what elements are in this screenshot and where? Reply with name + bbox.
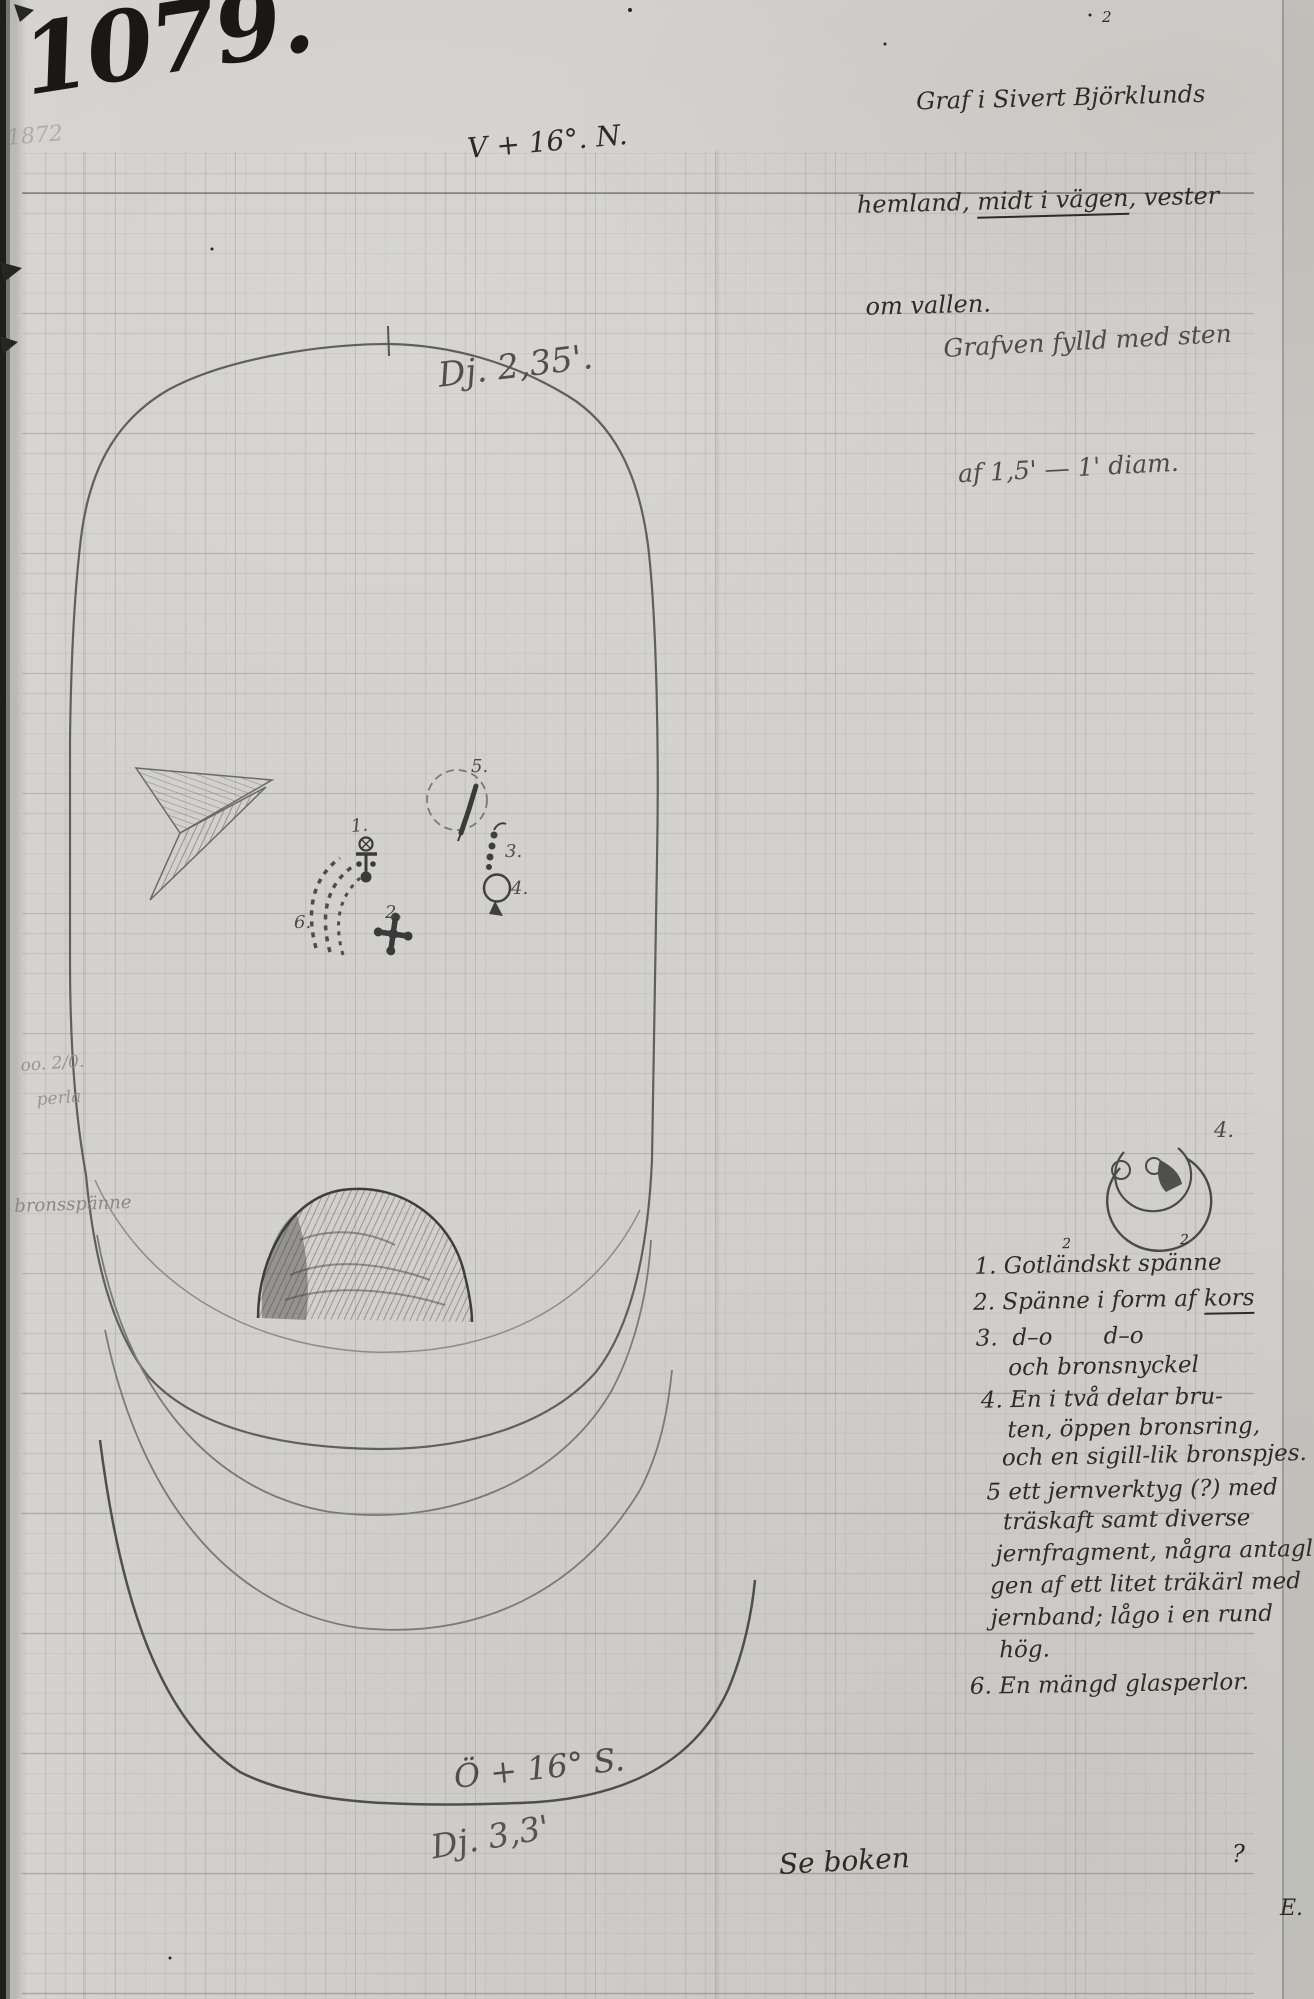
find-list-superscript-a: 2 bbox=[1062, 1236, 1071, 1252]
grave-outline-drawing bbox=[70, 326, 755, 1804]
find-list: 2 2 1. Gotländskt spänne 2. Spänne i for… bbox=[962, 1230, 1310, 1716]
find-list-item-5-cont-3: gen af ett litet träkärl med bbox=[990, 1568, 1301, 1599]
site-note-line-2-post: , vester bbox=[1128, 181, 1219, 211]
find-list-item-4-cont-1: ten, öppen bronsring, bbox=[1007, 1413, 1260, 1443]
find-list-item-2: 2. Spänne i form af kors bbox=[973, 1285, 1255, 1316]
find-5-circle-pin-drawing bbox=[427, 770, 487, 841]
find-list-item-5-cont-4: jernband; lågo i en rund bbox=[990, 1601, 1273, 1632]
find-list-item-5: 5 ett jernverktyg (?) med bbox=[986, 1475, 1278, 1506]
plan-marker-5: 5. bbox=[471, 756, 488, 777]
recorder-initial: E. bbox=[1280, 1896, 1303, 1921]
find-6-bead-arc-drawing bbox=[311, 858, 360, 955]
ghost-year-note: 1872 bbox=[6, 121, 64, 151]
find-list-item-4: 4. En i två delar bru- bbox=[981, 1383, 1224, 1413]
find-list-item-5-cont-5: hög. bbox=[999, 1637, 1050, 1664]
find-list-item-3-cont: och bronsnyckel bbox=[1008, 1352, 1199, 1381]
plan-marker-1: 1. bbox=[350, 815, 369, 837]
site-note-line-2-pre: hemland, bbox=[857, 188, 978, 219]
find-list-item-2-underlined: kors bbox=[1204, 1285, 1255, 1315]
margin-note-line-2: perla bbox=[36, 1087, 82, 1110]
find-3-4-chain-ring-drawing bbox=[484, 823, 510, 916]
ring-detail-marker: 4. bbox=[1214, 1118, 1234, 1142]
hatched-wedge-drawing bbox=[136, 768, 272, 900]
grave-fill-note-line-1: Grafven fylld med sten bbox=[942, 313, 1232, 370]
grave-fill-note-line-2: af 1,5' — 1' diam. bbox=[957, 439, 1239, 496]
scanned-field-sketch-page: 1079. 1872 2 Graf i Sivert Björklunds he… bbox=[0, 0, 1314, 1999]
find-1-brooch-drawing bbox=[356, 838, 377, 883]
margin-note-line-3: bronsspänne bbox=[14, 1192, 132, 1217]
find-list-item-1: 1. Gotländskt spänne bbox=[974, 1249, 1222, 1279]
plan-marker-6: 6. bbox=[294, 912, 311, 933]
find-list-item-6: 6. En mängd glasperlor. bbox=[970, 1669, 1250, 1700]
site-note-underlined-phrase: midt i vägen bbox=[977, 184, 1129, 219]
query-mark: ? bbox=[1232, 1840, 1245, 1868]
reference-note: Se boken bbox=[778, 1841, 911, 1881]
find-list-superscript-b: 2 bbox=[1180, 1232, 1189, 1248]
site-note-line-2: hemland, midt i vägen, vester bbox=[856, 177, 1257, 221]
find-list-item-5-cont-2: jernfragment, några antagli- bbox=[995, 1536, 1314, 1568]
find-list-item-3: 3. d–o d–o bbox=[976, 1323, 1144, 1352]
plan-marker-3: 3. bbox=[505, 841, 522, 862]
grave-fill-note: Grafven fylld med sten af 1,5' — 1' diam… bbox=[938, 229, 1244, 580]
site-note-line-1: Graf i Sivert Björklunds bbox=[916, 76, 1255, 119]
plan-marker-2: 2. bbox=[385, 902, 402, 923]
shaded-mound-drawing bbox=[258, 1189, 472, 1322]
plan-marker-4: 4. bbox=[511, 878, 528, 899]
find-list-item-4-cont-2: och en sigill-lik bronspjes. bbox=[1002, 1440, 1307, 1471]
find-list-item-5-cont-1: träskaft samt diverse bbox=[1003, 1505, 1251, 1535]
find-list-item-2-pre: 2. Spänne i form af bbox=[973, 1286, 1204, 1316]
